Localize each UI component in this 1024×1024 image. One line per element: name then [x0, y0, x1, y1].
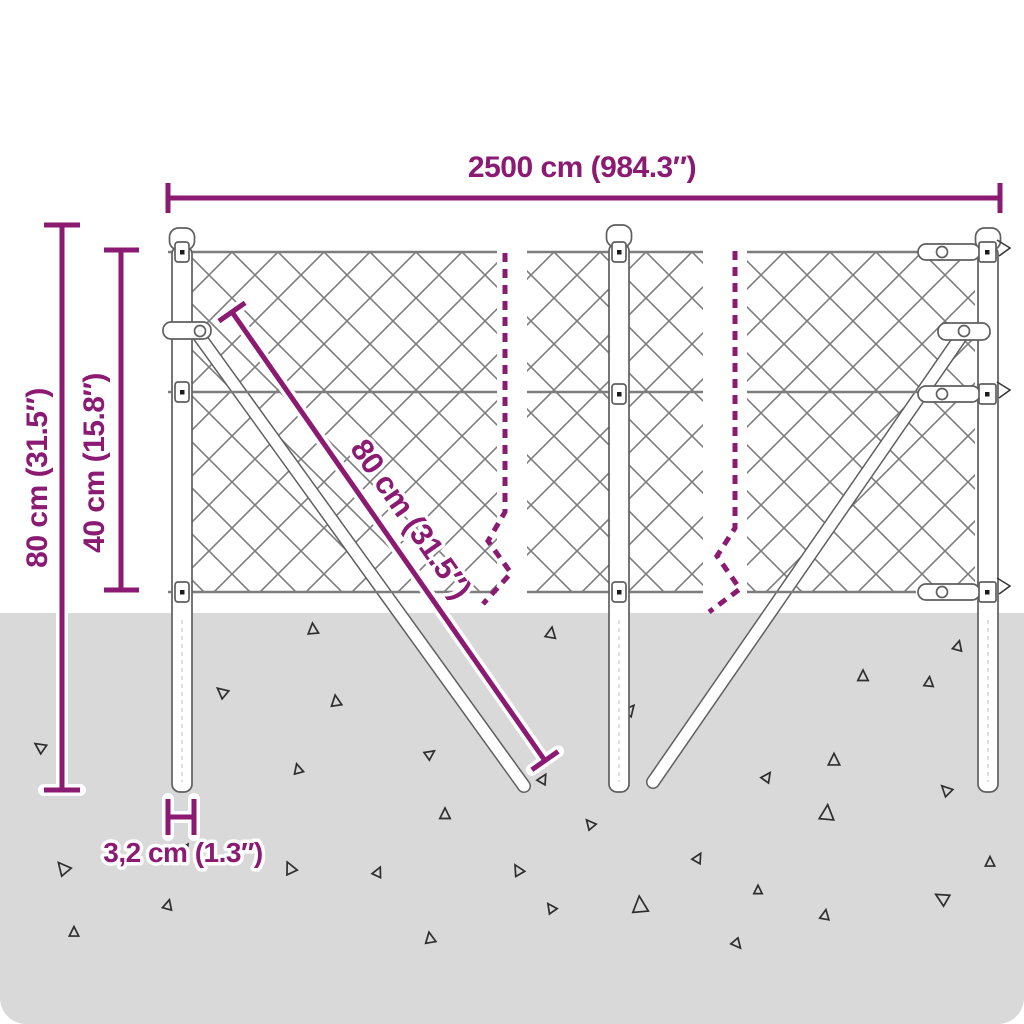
dim-post-height-label: 80 cm (31.5″)	[21, 388, 54, 568]
clamp-bolt	[180, 590, 185, 595]
clamp-bolt	[180, 390, 185, 395]
right-brace-bolt	[959, 326, 970, 337]
tensioner-bolt	[937, 389, 948, 400]
dim-mesh-height: 40 cm (15.8″)	[78, 250, 139, 590]
dim-line	[168, 183, 1000, 213]
ground	[0, 613, 1024, 1024]
clamp-bolt	[617, 392, 622, 397]
tensioner-bolt	[937, 247, 948, 258]
tensioner-middle	[918, 382, 1010, 404]
tensioner-bar	[918, 244, 980, 260]
dim-total-length-label: 2500 cm (984.3″)	[468, 151, 696, 184]
tensioner-bar	[918, 386, 980, 402]
left-brace-bolt	[195, 326, 206, 337]
tensioner-bolt	[937, 587, 948, 598]
tensioner-pin	[985, 590, 990, 595]
dim-mesh-height-label: 40 cm (15.8″)	[78, 373, 111, 553]
tensioner-bar	[918, 584, 980, 600]
clamp-bolt	[617, 590, 622, 595]
dim-total-length: 2500 cm (984.3″)	[168, 151, 1000, 213]
dim-post-diameter-label: 3,2 cm (1.3″)	[103, 837, 262, 868]
mesh-panel-3	[747, 252, 975, 592]
clamp-bolt	[180, 250, 185, 255]
tensioner-pin	[985, 392, 990, 397]
clamp-bolt	[617, 250, 622, 255]
tensioner-pin	[985, 250, 990, 255]
tensioner-pawl	[997, 578, 1010, 594]
fence-diagram-svg: 2500 cm (984.3″) 80 cm (31.5″) 40 cm (15…	[0, 0, 1024, 1024]
fence-dimension-diagram: 2500 cm (984.3″) 80 cm (31.5″) 40 cm (15…	[0, 0, 1024, 1024]
break-squiggle-right	[709, 251, 740, 612]
tensioner-top	[918, 240, 1010, 262]
tensioner-pawl	[997, 382, 1010, 398]
